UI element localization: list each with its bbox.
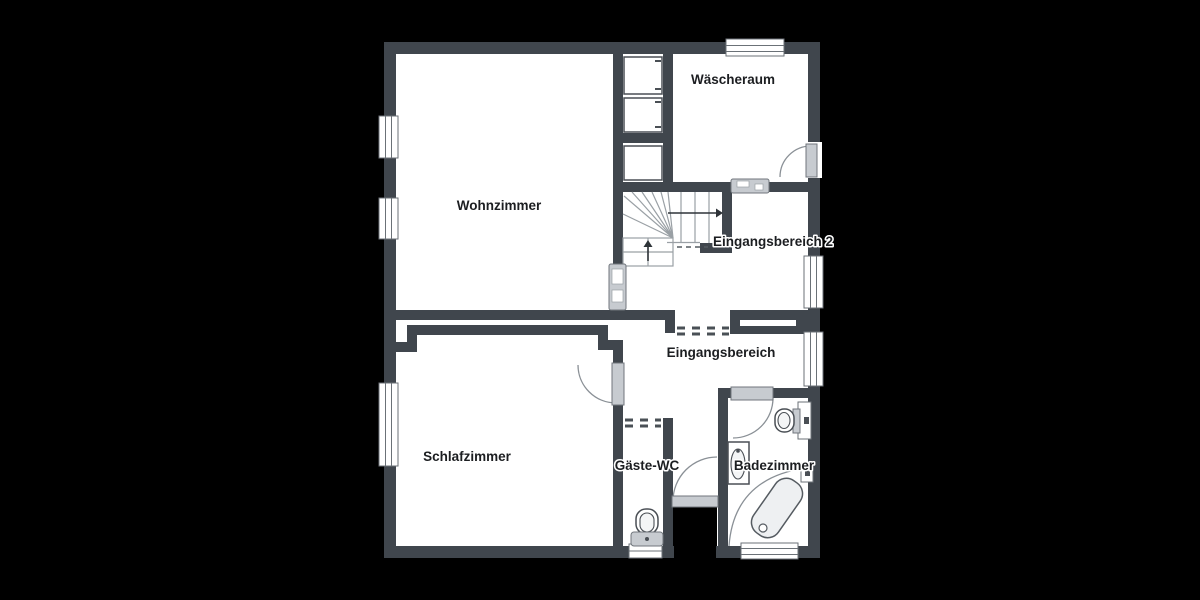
washing-machine-icon: [624, 57, 662, 94]
floor-area: [384, 42, 820, 558]
wall-segment: [613, 182, 820, 192]
wall-segment: [665, 320, 675, 333]
pocket-door-icon: [609, 264, 626, 310]
wall-segment: [718, 388, 728, 558]
room-label-gaeste-wc: Gäste-WC: [615, 458, 680, 473]
room-label-wohnzimmer: Wohnzimmer: [457, 198, 542, 213]
wall-segment: [384, 310, 675, 320]
washing-machine-icon: [624, 98, 662, 132]
wall-segment: [623, 133, 663, 143]
wall-segment: [663, 418, 673, 558]
pocket-door-icon: [731, 179, 769, 193]
wall-segment: [407, 325, 608, 335]
floor-plan-viewport: Wohnzimmer Wäscheraum Eingangsbereich 2 …: [0, 0, 1200, 600]
wall-segment: [730, 310, 740, 334]
room-label-eingangsbereich: Eingangsbereich: [667, 345, 776, 360]
wall-segment: [796, 310, 808, 334]
room-label-badezimmer: Badezimmer: [734, 458, 815, 473]
wall-segment: [598, 325, 608, 350]
window: [726, 39, 784, 56]
room-label-waescheraum: Wäscheraum: [691, 72, 775, 87]
room-label-schlafzimmer: Schlafzimmer: [423, 449, 512, 464]
room-label-eingangsbereich-2: Eingangsbereich 2: [713, 234, 833, 249]
window: [804, 332, 823, 386]
wall-segment: [773, 388, 808, 398]
wall-segment: [740, 326, 796, 334]
window: [379, 198, 398, 239]
wall-segment: [613, 405, 623, 546]
window: [379, 383, 398, 466]
cabinet-icon: [624, 146, 662, 180]
wall-segment: [613, 54, 623, 266]
entrance-notch: [673, 507, 717, 558]
window: [379, 116, 398, 158]
wall-segment: [663, 54, 673, 184]
window: [741, 543, 798, 559]
wall-segment: [613, 348, 623, 365]
floor-plan: Wohnzimmer Wäscheraum Eingangsbereich 2 …: [0, 0, 1200, 600]
window: [804, 256, 823, 308]
